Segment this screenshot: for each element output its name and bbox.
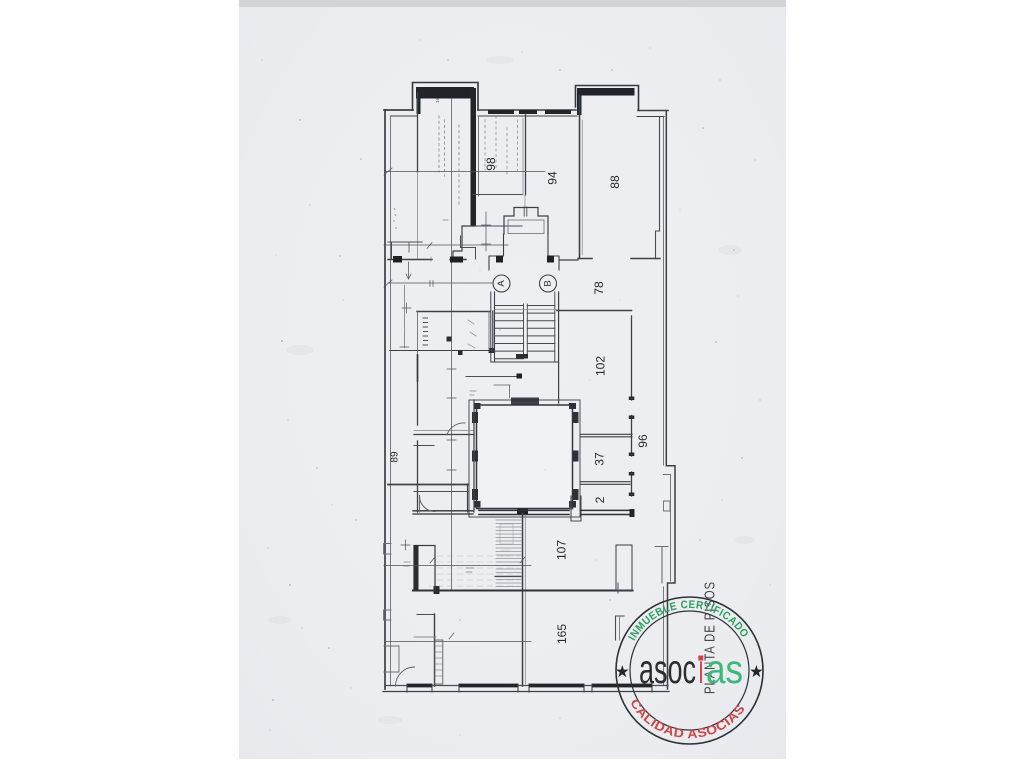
- svg-text:ı: ı: [698, 646, 704, 692]
- svg-text:A: A: [496, 280, 507, 287]
- svg-text:1e: 1e: [435, 97, 440, 103]
- svg-text:102: 102: [594, 356, 608, 376]
- svg-text:as: as: [706, 646, 743, 692]
- svg-text:96: 96: [636, 434, 650, 448]
- svg-text:165: 165: [555, 624, 569, 644]
- svg-text:89: 89: [390, 451, 401, 463]
- svg-text:B: B: [543, 280, 554, 286]
- svg-text:37: 37: [593, 452, 607, 466]
- svg-text:88: 88: [608, 175, 622, 189]
- svg-text:107: 107: [555, 540, 569, 560]
- svg-text:78: 78: [592, 281, 606, 295]
- svg-text:98: 98: [484, 157, 498, 171]
- svg-text:asoc: asoc: [639, 646, 696, 692]
- svg-text:2: 2: [593, 496, 607, 503]
- svg-text:94: 94: [546, 171, 560, 185]
